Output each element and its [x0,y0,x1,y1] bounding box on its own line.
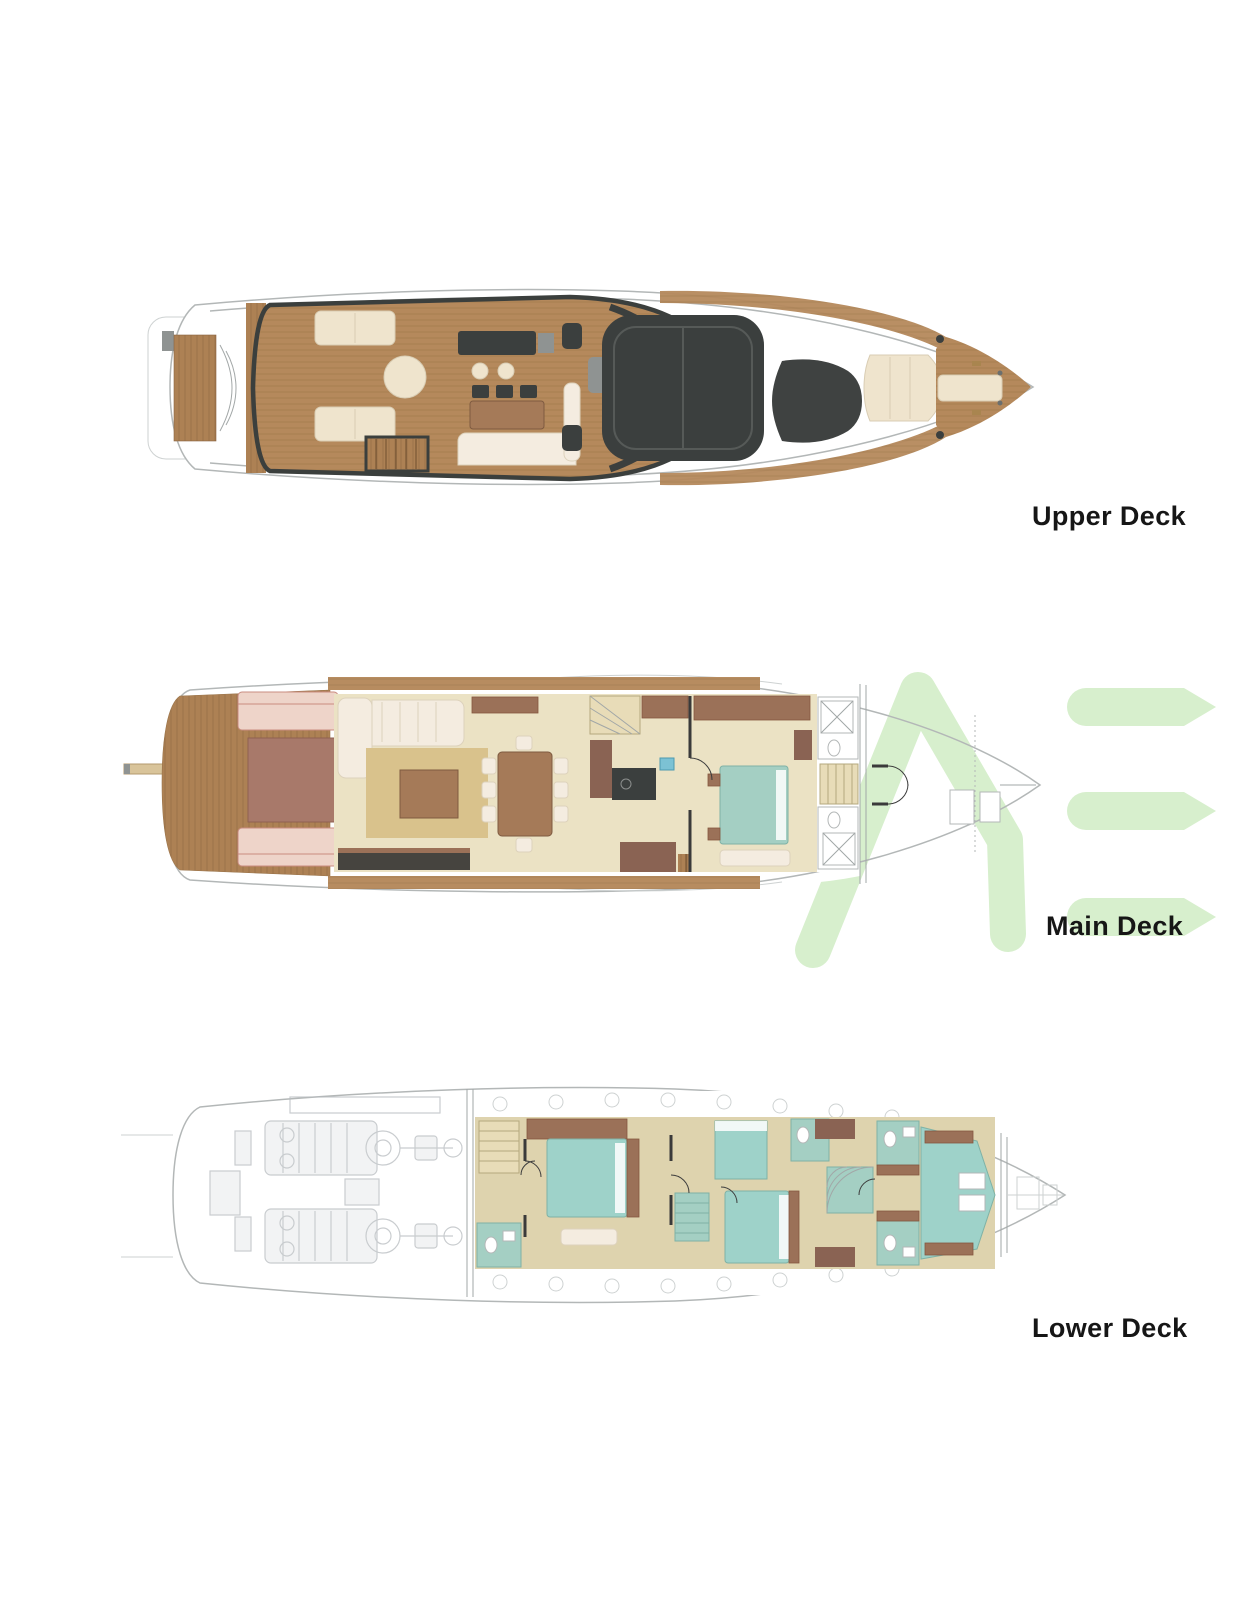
collision-bulkhead [860,684,866,884]
bow-hatch-1 [950,790,974,824]
galley-island [612,768,656,800]
master-wardrobe [694,696,810,720]
deck-label-main: Main Deck [1046,913,1183,940]
stairwell [366,437,428,471]
salon-cabinet [472,697,538,713]
galley-sink [660,758,674,770]
bow-hatch-2 [980,792,1000,822]
aft-deck-mat [248,738,338,822]
bow-sunpad [864,355,944,421]
watermark-letter-e [1067,688,1216,936]
deck-label-lower: Lower Deck [1032,1315,1188,1342]
platform-ghost-lines [121,1135,173,1257]
dining-table [498,752,552,836]
main-deck-plan [120,670,1045,900]
round-table [384,356,426,398]
side-deck-port [328,677,760,690]
forward-lobby [817,684,866,884]
tv-cabinet [338,852,470,870]
sunpad-port [238,692,338,730]
guest-accommodation [475,1117,995,1269]
side-deck-starboard [328,876,760,889]
deck-label-upper: Upper Deck [1032,503,1186,530]
aft-deck [162,690,338,876]
bow-area [872,715,1036,855]
foyer-stairs [827,1167,873,1213]
coffee-table [400,770,458,818]
master-cabin [689,694,817,872]
lower-deck-plan [115,1075,1070,1310]
upper-deck-plan [140,275,1040,503]
yacht-deck-plans-page: Upper Deck [0,0,1250,1619]
sunpad-starboard [238,828,338,866]
hardtop-glass-roof [602,315,764,461]
master-bench [720,850,790,866]
guest-cabin-starboard [721,1187,799,1263]
aft-bathroom [477,1223,521,1267]
cockpit-windscreen [772,359,862,442]
aft-stairs [479,1121,519,1173]
